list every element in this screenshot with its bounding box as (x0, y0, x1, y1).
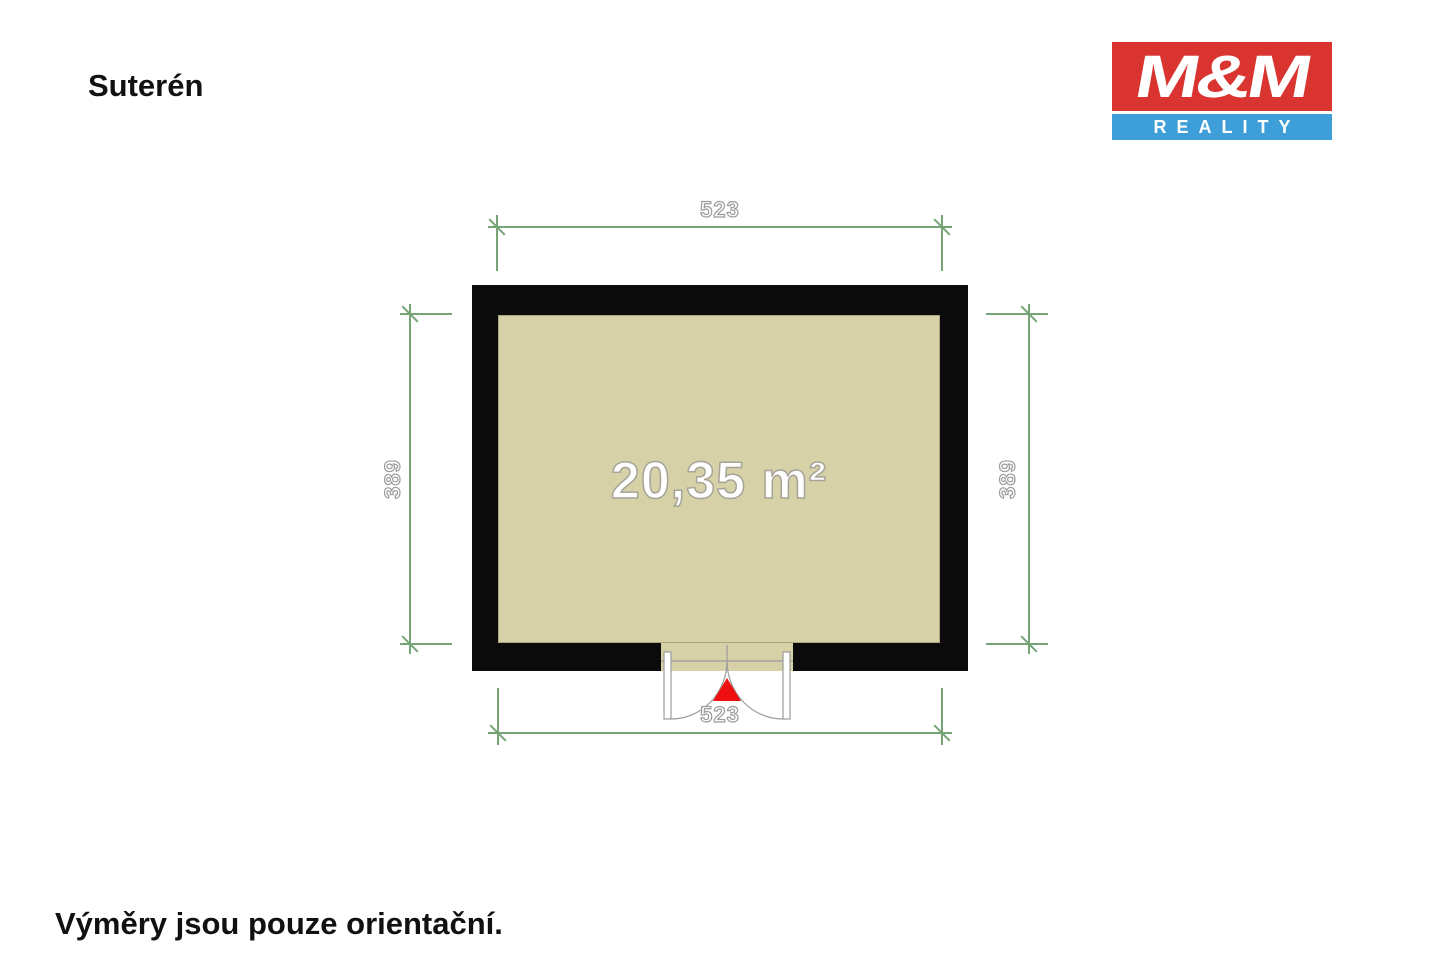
dimension-line-top (488, 226, 952, 228)
logo-top-text: M&M (1131, 47, 1314, 107)
extension-line-bottom-right (941, 688, 943, 745)
door-leaf-right (783, 652, 790, 719)
logo-bottom-text: REALITY (1143, 118, 1300, 136)
dimension-label-right: 389 (996, 419, 1020, 539)
extension-line-right-bottom (986, 643, 1048, 645)
dimension-line-bottom (488, 732, 952, 734)
disclaimer-text: Výměry jsou pouze orientační. (55, 906, 503, 942)
dimension-line-left (409, 304, 411, 654)
extension-line-top-left (496, 215, 498, 271)
dimension-label-top: 523 (660, 198, 780, 222)
logo-red-box: M&M (1112, 42, 1332, 111)
extension-line-bottom-left (497, 688, 499, 745)
floorplan-page: Suterén M&M REALITY 20,35 m² 523 389 389 (0, 0, 1440, 960)
dimension-label-left: 389 (381, 419, 405, 539)
entrance-marker-icon (713, 678, 741, 701)
agency-logo: M&M REALITY (1112, 42, 1332, 140)
page-title: Suterén (88, 68, 203, 104)
extension-line-top-right (941, 215, 943, 271)
room-area-label: 20,35 m² (498, 453, 940, 509)
dimension-line-right (1028, 304, 1030, 654)
extension-line-right-top (986, 313, 1048, 315)
dimension-label-bottom: 523 (660, 703, 780, 727)
logo-blue-bar: REALITY (1112, 114, 1332, 140)
